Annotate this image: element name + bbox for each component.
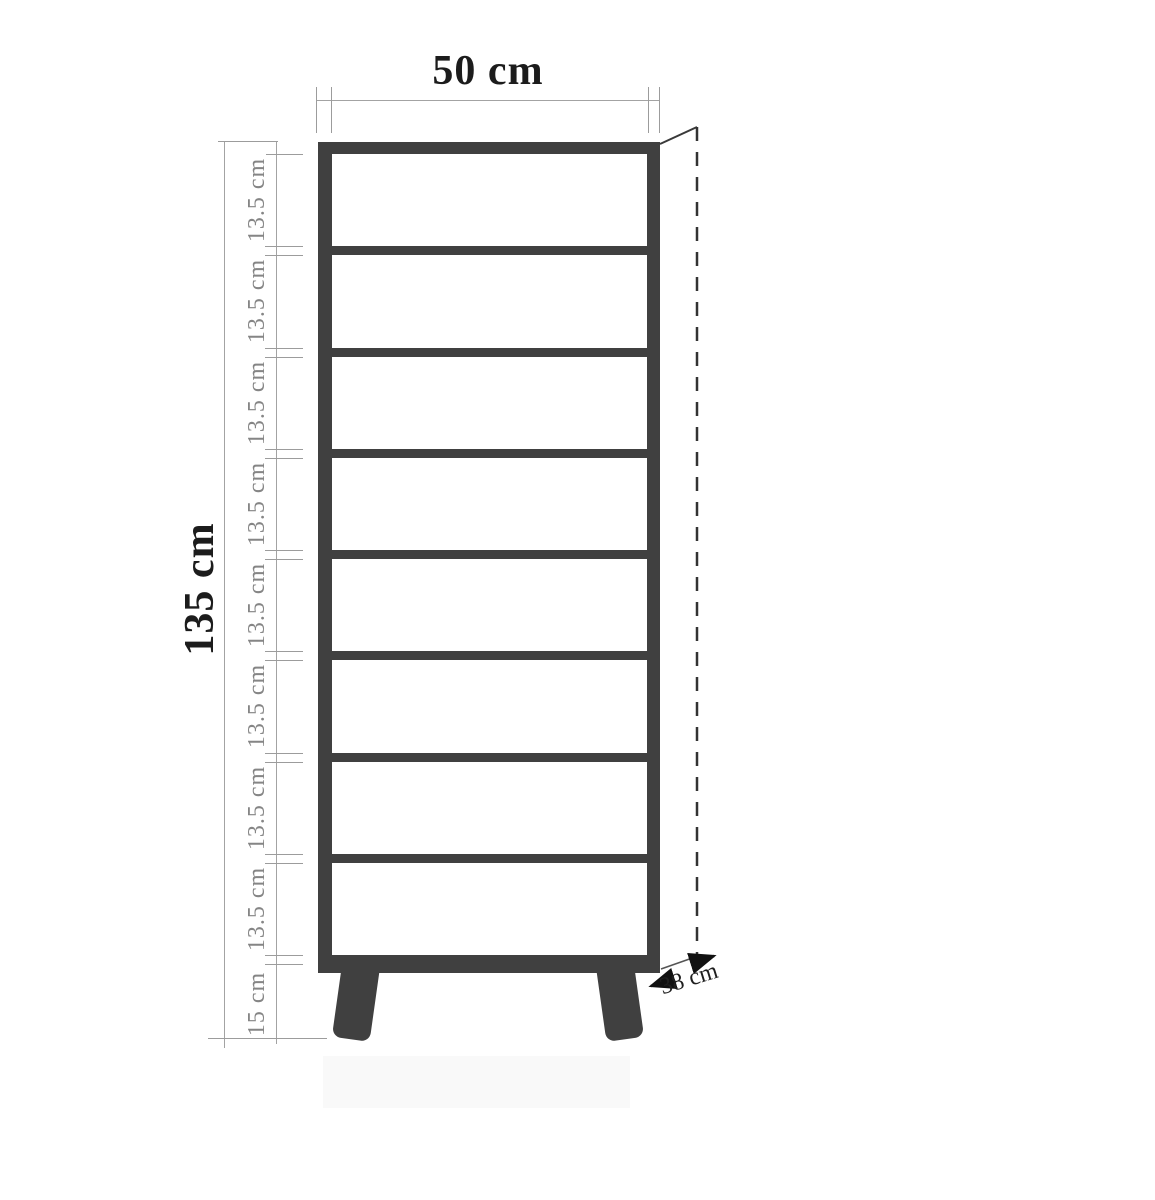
floor-shadow <box>323 1056 630 1108</box>
shelf-divider <box>332 854 647 863</box>
compartment-tick <box>265 863 303 864</box>
compartment-tick <box>265 550 303 551</box>
shelf-divider <box>332 550 647 559</box>
shelf-divider <box>332 348 647 357</box>
compartment-tick <box>265 449 303 450</box>
compartment-tick <box>265 348 303 349</box>
compartment-tick <box>265 559 303 560</box>
shelf-divider <box>332 246 647 255</box>
compartment-tick <box>265 357 303 358</box>
dimension-diagram: 50 cm 135 cm 15 cm 38 cm 13.5 cm13.5 cm1… <box>0 0 1155 1200</box>
compartment-tick <box>265 458 303 459</box>
cabinet-leg-left <box>332 963 380 1042</box>
cabinet-leg-right <box>596 963 644 1042</box>
width-dimension-line <box>316 100 660 101</box>
compartment-tick <box>265 255 303 256</box>
compartment-tick <box>265 753 303 754</box>
width-tick-outer-left <box>316 87 317 133</box>
compartment-tick <box>265 854 303 855</box>
compartment-tick <box>265 964 303 965</box>
width-tick-inner-right <box>648 87 649 133</box>
compartment-tick <box>265 246 303 247</box>
height-dimension-line <box>224 141 225 1048</box>
shelf-divider <box>332 651 647 660</box>
shelf-divider <box>332 449 647 458</box>
compartment-tick-top-inner <box>266 154 303 155</box>
perspective-top-edge <box>660 127 697 144</box>
width-tick-outer-right <box>659 87 660 133</box>
width-dimension-label: 50 cm <box>316 47 660 95</box>
compartment-dimension-label: 13.5 cm <box>245 849 269 969</box>
compartment-tick <box>265 955 303 956</box>
compartment-tick <box>265 660 303 661</box>
compartment-tick <box>265 651 303 652</box>
compartment-dimension-line <box>276 141 277 1044</box>
compartment-tick <box>265 762 303 763</box>
shelf-divider <box>332 753 647 762</box>
height-dimension-label: 135 cm <box>180 489 220 689</box>
width-tick-inner-left <box>331 87 332 133</box>
